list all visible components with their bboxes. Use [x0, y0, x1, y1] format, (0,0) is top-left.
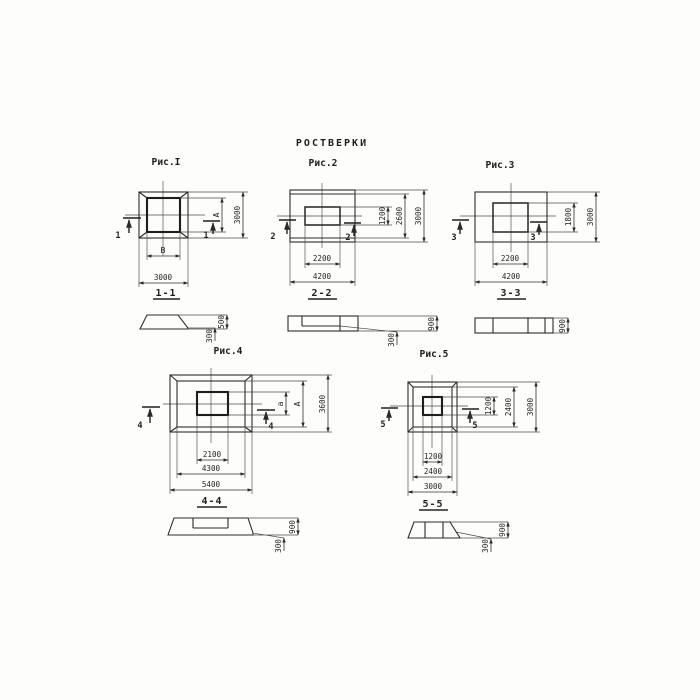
- dim-mid-width: 4300: [202, 464, 221, 473]
- dim-mid-height: А: [292, 401, 302, 406]
- dim-outer-width: 5400: [202, 480, 221, 489]
- figure-5-plan: 1200 2400 3000 1200 2400 3000 5 5 5-5: [380, 375, 540, 510]
- figure-2-label: Рис.2: [309, 158, 338, 169]
- drawing-sheet: РОСТВЕРКИ Рис.I Рис.2 Рис.3 В 3000 А 300…: [0, 0, 700, 700]
- section-total-height: 900: [558, 319, 567, 333]
- figure-1-label: Рис.I: [152, 157, 181, 168]
- section-profile: [288, 316, 358, 331]
- dim-outer-width: 4200: [502, 272, 521, 281]
- dim-outer-height: 3600: [318, 394, 327, 413]
- division-lines: [493, 318, 545, 333]
- cut-number: 4: [137, 421, 142, 431]
- dim-outer-width: 4200: [313, 272, 332, 281]
- cut-number: 5: [380, 420, 385, 430]
- mid-contour: [413, 387, 452, 427]
- recess-lines: [193, 518, 228, 528]
- section-label: 3-3: [500, 288, 521, 299]
- dim-inner-height: 1800: [564, 207, 573, 226]
- dim-inner-width: В: [161, 245, 166, 255]
- dim-outer-width: 3000: [424, 482, 443, 491]
- dim-inner-width: 2200: [313, 254, 332, 263]
- figure-3-label: Рис.3: [486, 160, 515, 171]
- dim-inner-height: а: [275, 401, 285, 406]
- section-profile: [168, 518, 253, 535]
- cut-number: 2: [270, 232, 275, 242]
- centerlines: [390, 375, 468, 448]
- section-edge-height: 300: [387, 333, 396, 347]
- section-total-height: 900: [427, 317, 436, 331]
- chamfer-lines: [408, 382, 457, 432]
- cut-number: 1: [203, 231, 208, 241]
- cut-number: 3: [530, 233, 535, 243]
- dim-outer-width: 3000: [154, 273, 173, 282]
- recess-lines: [302, 316, 340, 331]
- section-label: 1-1: [155, 288, 176, 299]
- dim-outer-height: 3000: [233, 205, 242, 224]
- extension-lines: [408, 382, 540, 496]
- section-total-height: 500: [217, 315, 226, 329]
- section-edge-height: 300: [481, 539, 490, 553]
- figure-4-label: Рис.4: [214, 346, 243, 357]
- dim-mid-height: 2600: [395, 206, 404, 225]
- dim-inner-height: 1200: [484, 396, 493, 415]
- outer-contour: [408, 382, 457, 432]
- figure-4-plan: 2100 4300 5400 а А 3600 4 4 4-4: [137, 368, 332, 507]
- figure-1-plan: В 3000 А 3000 1 1 1-1: [115, 181, 248, 299]
- drawing-title: РОСТВЕРКИ: [296, 138, 368, 149]
- dim-mid-width: 2400: [424, 467, 443, 476]
- section-label: 2-2: [311, 288, 332, 299]
- section-profile: [408, 522, 460, 538]
- section-label: 4-4: [201, 496, 222, 507]
- section-view-3-3: 900: [475, 318, 568, 333]
- cut-number: 2: [345, 233, 350, 243]
- section-view-5-5: 900 300: [408, 522, 508, 553]
- figure-2-plan: 2200 4200 1200 2600 3000 2 2 2-2: [270, 183, 428, 299]
- division-lines: [425, 522, 443, 538]
- cut-number: 5: [472, 421, 477, 431]
- dim-inner-width: 2100: [203, 450, 222, 459]
- section-edge-height: 300: [274, 539, 283, 553]
- section-profile: [140, 315, 188, 329]
- figure-5-label: Рис.5: [420, 349, 449, 360]
- section-total-height: 900: [288, 520, 297, 534]
- section-view-4-4: 900 300: [168, 518, 298, 553]
- engineering-drawing: РОСТВЕРКИ Рис.I Рис.2 Рис.3 В 3000 А 300…: [0, 0, 700, 700]
- section-edge-height: 300: [205, 329, 214, 343]
- section-label: 5-5: [422, 499, 443, 510]
- dim-inner-height: А: [211, 212, 221, 217]
- dim-inner-width: 1200: [424, 452, 443, 461]
- figure-3-plan: 2200 4200 1800 3000 3 3 3-3: [451, 183, 600, 299]
- cut-number: 3: [451, 233, 456, 243]
- section-view-1-1: 500 300: [140, 315, 227, 343]
- dim-outer-height: 3000: [414, 206, 423, 225]
- section-view-2-2: 900 300: [288, 316, 437, 347]
- cut-number: 4: [268, 422, 273, 432]
- leader-lines: [340, 316, 437, 332]
- dim-outer-height: 3000: [526, 397, 535, 416]
- dim-mid-height: 2400: [504, 397, 513, 416]
- section-total-height: 900: [498, 523, 507, 537]
- section-profile: [475, 318, 553, 333]
- cut-number: 1: [115, 231, 120, 241]
- extension-lines: [170, 375, 332, 494]
- inner-contour: [197, 392, 228, 415]
- dim-outer-height: 3000: [586, 207, 595, 226]
- inner-contour: [493, 203, 528, 232]
- dim-inner-height: 1200: [378, 206, 387, 225]
- dim-inner-width: 2200: [501, 254, 520, 263]
